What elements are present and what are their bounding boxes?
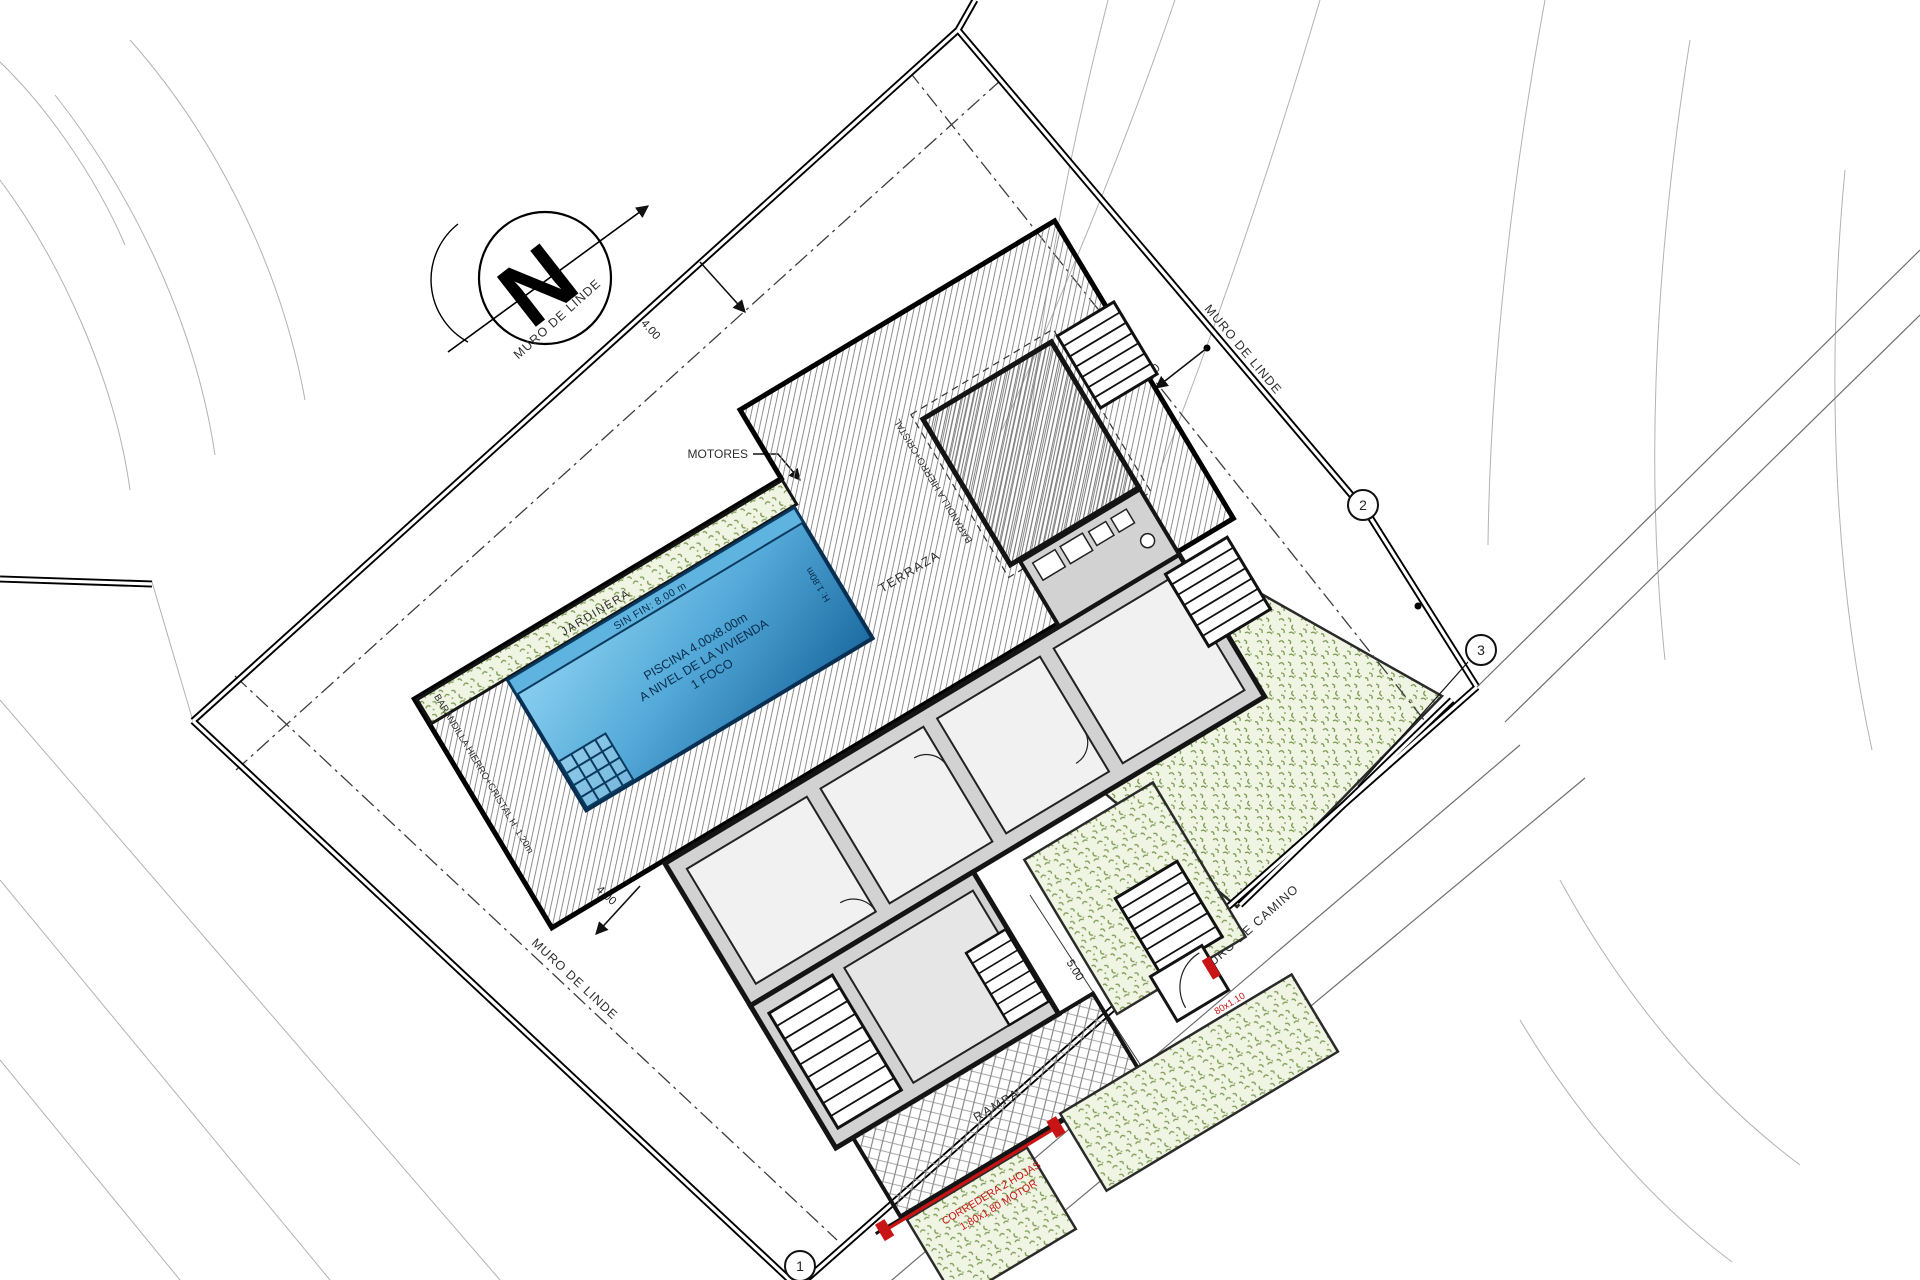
muro-linde-bottom-label: MURO DE LINDE: [529, 936, 621, 1023]
axis-marker-2: 2: [1348, 490, 1378, 520]
site-plan-page: N MURO DE LINDE MURO DE LINDE MURO DE LI…: [0, 0, 1920, 1280]
site-plan-drawing: N MURO DE LINDE MURO DE LINDE MURO DE LI…: [0, 0, 1920, 1280]
svg-text:3: 3: [1477, 642, 1485, 658]
axis-marker-3: 3: [1466, 635, 1496, 665]
dim-4m-top: 4.00: [638, 318, 662, 343]
svg-text:1: 1: [796, 1258, 804, 1274]
motores-label: MOTORES: [688, 447, 748, 461]
wall-junction-dot: [1415, 603, 1422, 610]
svg-text:2: 2: [1359, 497, 1367, 513]
muro-linde-right-label: MURO DE LINDE: [1202, 302, 1285, 397]
axis-marker-1: 1: [785, 1251, 815, 1280]
dim-5m-entry: 5.00: [1064, 958, 1086, 983]
compass-arc: [431, 224, 468, 342]
